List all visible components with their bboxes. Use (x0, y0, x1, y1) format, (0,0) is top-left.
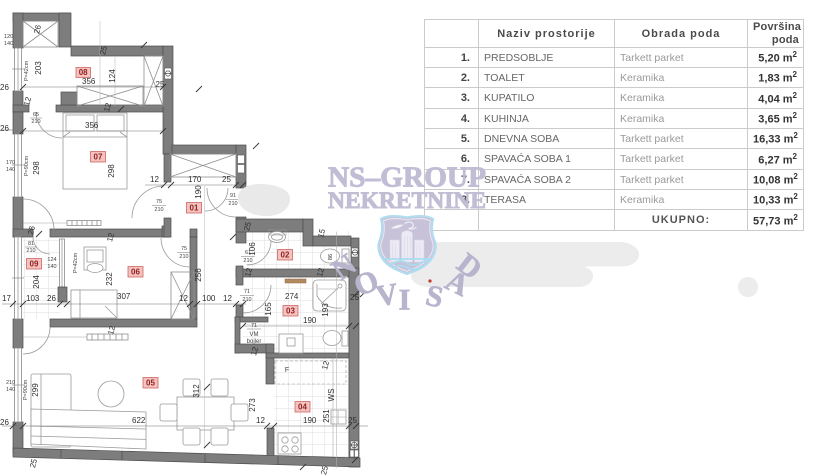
svg-text:91: 91 (230, 193, 236, 199)
svg-text:02: 02 (281, 251, 290, 260)
svg-text:210: 210 (6, 380, 15, 386)
svg-text:08: 08 (79, 68, 88, 77)
svg-text:WS: WS (327, 389, 336, 402)
svg-text:100: 100 (202, 294, 216, 303)
svg-text:193: 193 (321, 303, 330, 317)
svg-text:622: 622 (132, 416, 146, 425)
svg-text:170: 170 (6, 160, 15, 166)
svg-text:312: 312 (192, 384, 201, 398)
svg-text:01: 01 (190, 204, 199, 213)
svg-text:26: 26 (26, 224, 37, 235)
svg-text:103: 103 (26, 294, 40, 303)
svg-text:251: 251 (322, 409, 331, 423)
svg-text:124: 124 (47, 257, 56, 263)
svg-text:25: 25 (254, 183, 265, 194)
svg-text:140: 140 (4, 41, 13, 47)
svg-text:04: 04 (298, 403, 307, 412)
svg-text:05: 05 (146, 379, 155, 388)
svg-text:25: 25 (156, 80, 165, 89)
svg-text:25: 25 (222, 175, 231, 184)
svg-text:03: 03 (286, 307, 295, 316)
svg-text:75: 75 (181, 246, 187, 252)
svg-text:356: 356 (82, 77, 96, 86)
svg-text:165: 165 (264, 302, 273, 316)
svg-text:298: 298 (107, 164, 116, 178)
svg-text:P=42cm: P=42cm (73, 252, 79, 273)
svg-text:bojler: bojler (247, 339, 262, 345)
svg-text:25: 25 (28, 457, 39, 468)
svg-text:120: 120 (4, 34, 13, 40)
svg-text:75: 75 (156, 199, 162, 205)
svg-text:P=42cm: P=42cm (24, 60, 30, 81)
svg-text:12: 12 (223, 294, 232, 303)
svg-text:298: 298 (32, 161, 41, 175)
svg-text:25: 25 (348, 416, 357, 425)
svg-text:273: 273 (248, 398, 257, 412)
svg-text:140: 140 (47, 264, 56, 270)
svg-text:VM: VM (250, 332, 259, 338)
svg-text:256: 256 (194, 268, 203, 282)
svg-text:F: F (285, 367, 289, 374)
svg-text:190: 190 (303, 416, 317, 425)
svg-text:210: 210 (228, 201, 237, 207)
svg-text:124: 124 (108, 69, 117, 83)
svg-text:210: 210 (154, 207, 163, 213)
svg-text:25: 25 (350, 293, 359, 302)
svg-text:190: 190 (303, 316, 317, 325)
svg-text:12: 12 (22, 95, 33, 106)
svg-text:26: 26 (0, 83, 9, 92)
svg-text:307: 307 (117, 292, 131, 301)
svg-text:07: 07 (94, 153, 103, 162)
svg-text:17: 17 (2, 294, 11, 303)
svg-text:170: 170 (188, 175, 202, 184)
svg-text:232: 232 (105, 272, 114, 286)
svg-text:210: 210 (179, 254, 188, 260)
svg-text:203: 203 (34, 61, 43, 75)
svg-text:140: 140 (6, 167, 15, 173)
svg-text:299: 299 (31, 383, 40, 397)
svg-text:204: 204 (32, 275, 41, 289)
svg-text:86: 86 (328, 254, 334, 260)
svg-text:61: 61 (245, 250, 251, 256)
svg-text:12: 12 (256, 416, 265, 425)
svg-text:71: 71 (251, 323, 257, 329)
svg-text:06: 06 (131, 268, 140, 277)
svg-text:210: 210 (242, 297, 251, 303)
svg-text:26: 26 (0, 418, 9, 427)
svg-text:P=90cm: P=90cm (23, 379, 29, 400)
svg-text:210: 210 (31, 119, 40, 125)
svg-text:12: 12 (150, 175, 159, 184)
svg-text:356: 356 (85, 121, 99, 130)
svg-text:65: 65 (33, 112, 39, 118)
svg-text:274: 274 (285, 292, 299, 301)
svg-text:09: 09 (30, 260, 39, 269)
svg-text:81: 81 (28, 241, 34, 247)
svg-text:71: 71 (244, 289, 250, 295)
svg-text:190: 190 (194, 185, 203, 199)
svg-text:12: 12 (179, 294, 188, 303)
svg-text:210: 210 (26, 248, 35, 254)
svg-text:210: 210 (243, 258, 252, 264)
svg-text:26: 26 (47, 294, 56, 303)
svg-text:140: 140 (6, 387, 15, 393)
svg-text:P=90cm: P=90cm (24, 155, 30, 176)
svg-text:26: 26 (0, 124, 9, 133)
